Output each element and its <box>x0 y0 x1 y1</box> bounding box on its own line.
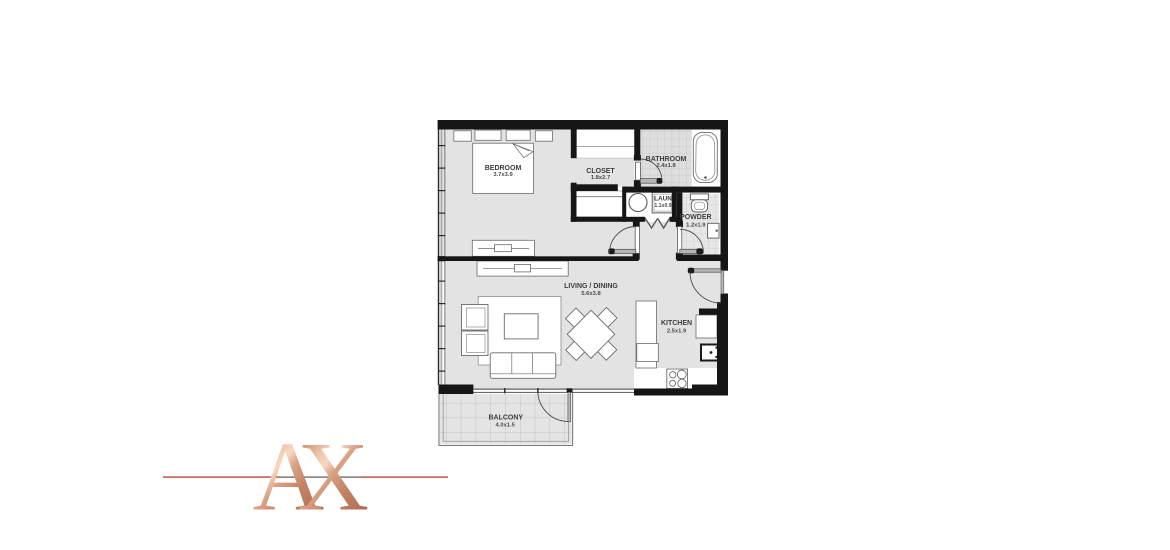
svg-text:CLOSET: CLOSET <box>586 168 615 175</box>
svg-text:POWDER: POWDER <box>680 214 712 221</box>
svg-text:X: X <box>298 423 370 532</box>
svg-text:LAUN: LAUN <box>654 196 672 203</box>
svg-text:1.8x2.7: 1.8x2.7 <box>591 175 610 181</box>
svg-text:5.6x3.8: 5.6x3.8 <box>581 291 601 297</box>
svg-text:2.5x1.9: 2.5x1.9 <box>667 328 687 334</box>
svg-text:BATHROOM: BATHROOM <box>646 156 687 163</box>
svg-text:3.7x3.9: 3.7x3.9 <box>493 172 513 178</box>
svg-text:1.1x0.9: 1.1x0.9 <box>654 203 671 209</box>
svg-text:2.4x1.8: 2.4x1.8 <box>656 163 676 169</box>
svg-text:KITCHEN: KITCHEN <box>661 320 692 327</box>
svg-text:BALCONY: BALCONY <box>488 414 523 421</box>
svg-text:4.0x1.5: 4.0x1.5 <box>496 422 516 428</box>
svg-text:LIVING / DINING: LIVING / DINING <box>564 283 618 290</box>
svg-text:BEDROOM: BEDROOM <box>485 165 522 172</box>
svg-text:1.2x1.9: 1.2x1.9 <box>686 222 706 228</box>
